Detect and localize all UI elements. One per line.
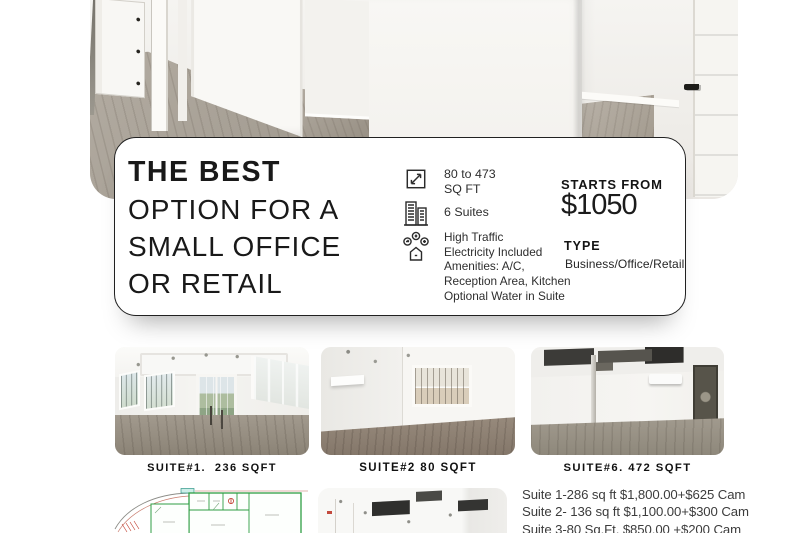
floor-plan: [113, 485, 311, 533]
pricing-list: Suite 1-286 sq ft $1,800.00+$625 Cam Sui…: [522, 486, 790, 533]
pricing-line-3: Suite 3-80 Sq.Ft. $850.00 +$200 Cam: [522, 521, 790, 533]
amenities-line-4: Reception Area, Kitchen: [444, 274, 571, 289]
bottom-photo-doorframe-art: [335, 499, 336, 533]
headline-line-2: OPTION FOR A: [128, 191, 418, 228]
suite-6-caption: SUITE#6. 472 SQFT: [531, 462, 724, 474]
suite-1-caption: SUITE#1. 236 SQFT: [115, 462, 309, 474]
dimensions-icon: [405, 168, 427, 190]
amenities-feature-text: High Traffic Electricity Included Amenit…: [444, 230, 571, 304]
buildings-icon: [403, 199, 429, 227]
suite1-left-window2-art: [144, 371, 175, 412]
suite1-left-window-art: [119, 370, 140, 411]
suite1-posts-art: [210, 406, 212, 424]
hero-door-handle-art: [684, 84, 700, 90]
suite6-pole-art: [591, 355, 596, 433]
amenities-icon: [402, 231, 430, 263]
price-value: $1050: [561, 189, 637, 222]
floor-plan-drawing: [113, 485, 311, 533]
amenities-line-2: Electricity Included: [444, 245, 571, 260]
headline-line-1: THE BEST: [128, 154, 418, 191]
amenities-line-3: Amenities: A/C,: [444, 259, 571, 274]
suite6-ac-unit-art: [649, 374, 682, 384]
info-card: THE BEST OPTION FOR A SMALL OFFICE OR RE…: [114, 137, 686, 316]
suite-1-photo: [115, 347, 309, 455]
headline-line-3: SMALL OFFICE: [128, 228, 418, 265]
suite2-window-art: [412, 365, 472, 407]
headline: THE BEST OPTION FOR A SMALL OFFICE OR RE…: [128, 154, 418, 302]
suite-2-photo: [321, 347, 515, 455]
suite-6-photo: [531, 347, 724, 455]
size-line-2: SQ FT: [444, 182, 496, 197]
type-label: TYPE: [564, 239, 601, 253]
amenities-line-5: Optional Water in Suite: [444, 289, 571, 304]
bottom-photo-lights-art: [318, 488, 507, 533]
headline-line-4: OR RETAIL: [128, 265, 418, 302]
amenities-line-1: High Traffic: [444, 230, 571, 245]
bottom-interior-photo: [318, 488, 507, 533]
suite-2-caption: SUITE#2 80 SQFT: [321, 462, 515, 474]
flyer: THE BEST OPTION FOR A SMALL OFFICE OR RE…: [0, 0, 800, 533]
size-line-1: 80 to 473: [444, 167, 496, 182]
size-feature-text: 80 to 473 SQ FT: [444, 167, 496, 197]
hero-right-door-art: [693, 0, 738, 197]
pricing-line-1: Suite 1-286 sq ft $1,800.00+$625 Cam: [522, 486, 790, 503]
pricing-line-2: Suite 2- 136 sq ft $1,100.00+$300 Cam: [522, 503, 790, 520]
suites-feature-text: 6 Suites: [444, 205, 489, 220]
bottom-photo-exit-sign-art: [327, 511, 332, 514]
type-value: Business/Office/Retail: [565, 257, 684, 271]
